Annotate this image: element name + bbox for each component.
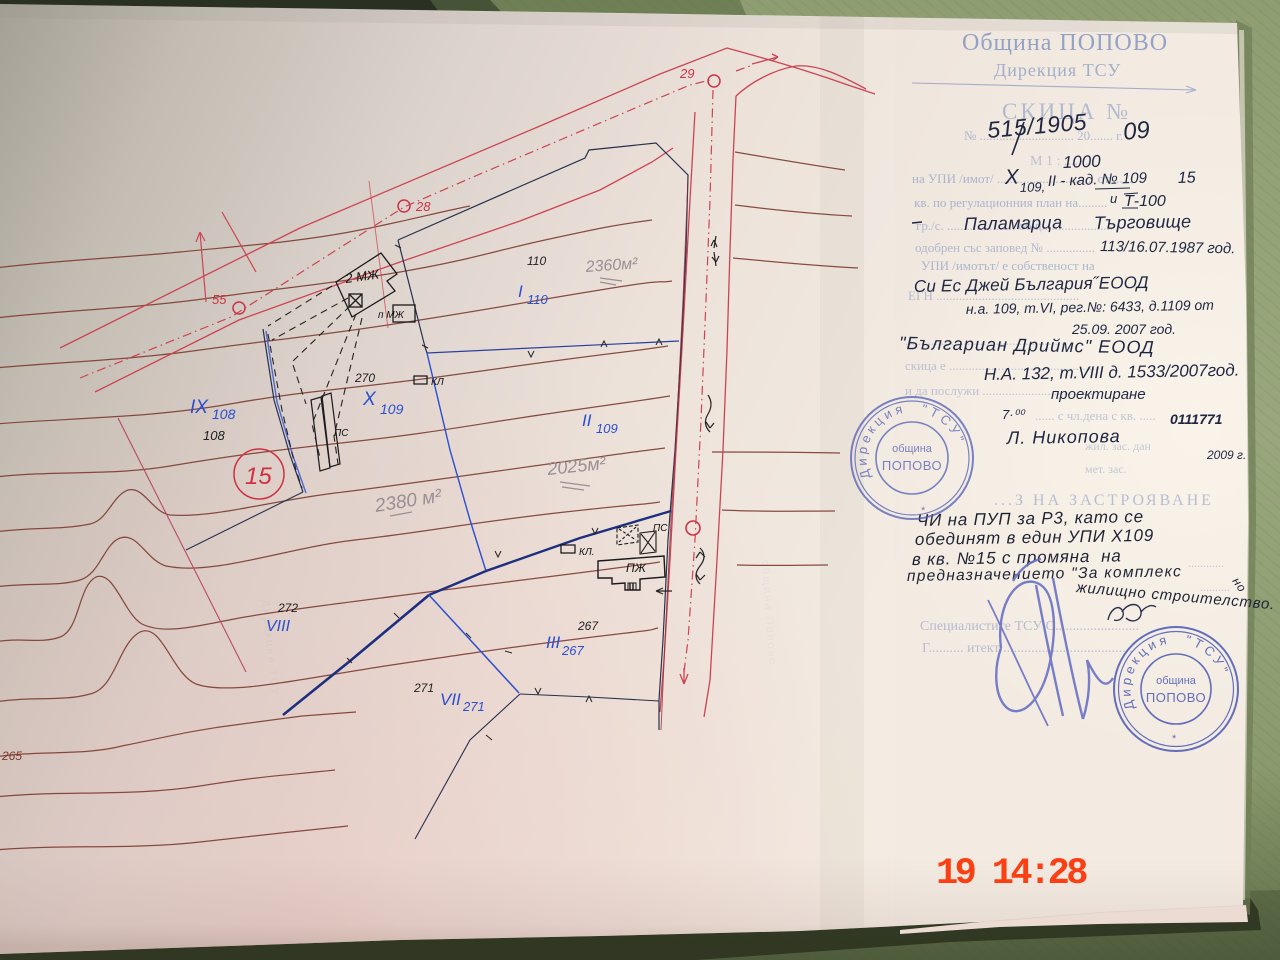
svg-text:Паламарца: Паламарца — [964, 212, 1063, 234]
svg-text:271: 271 — [462, 699, 485, 714]
svg-text:I: I — [518, 282, 523, 301]
svg-text:1000: 1000 — [1062, 152, 1101, 172]
svg-text:КЛ: КЛ — [431, 377, 444, 388]
svg-text:IX: IX — [190, 397, 209, 418]
svg-text:одобрен със заповед № ........: одобрен със заповед № ............... — [915, 240, 1095, 255]
svg-text:проектиране: проектиране — [1051, 386, 1146, 403]
svg-text:267: 267 — [577, 619, 599, 633]
svg-text:19 14:28: 19 14:28 — [936, 853, 1087, 895]
svg-text:29: 29 — [679, 66, 694, 81]
svg-text:п МЖ: п МЖ — [378, 310, 405, 321]
svg-text:............: ............ — [1188, 556, 1224, 570]
svg-text:270: 270 — [354, 371, 375, 385]
svg-text:272: 272 — [277, 601, 298, 615]
svg-text:Специалистите ТСУ С...........: Специалистите ТСУ С.....................… — [920, 619, 1139, 634]
svg-text:Дирекция ТСУ: Дирекция ТСУ — [994, 60, 1121, 80]
svg-text:109: 109 — [596, 421, 618, 436]
svg-text:15: 15 — [1178, 169, 1196, 187]
svg-text:55: 55 — [212, 292, 227, 307]
svg-text:Г.......... итект ............: Г.......... итект ......................… — [922, 641, 1133, 656]
svg-text:265: 265 — [1, 749, 22, 763]
svg-text:271: 271 — [413, 681, 434, 695]
svg-text:Х: Х — [1003, 165, 1020, 189]
svg-text:Търговище: Търговище — [1094, 211, 1192, 233]
svg-text:III: III — [546, 633, 560, 652]
svg-text:108: 108 — [212, 406, 236, 422]
svg-text:110: 110 — [527, 292, 548, 307]
svg-text:0111771: 0111771 — [1170, 411, 1223, 427]
svg-text:мет. зас.: мет. зас. — [1085, 462, 1127, 476]
svg-text:и: и — [1110, 191, 1117, 206]
svg-text:ПЖ: ПЖ — [626, 561, 647, 575]
svg-text:109: 109 — [380, 401, 404, 417]
svg-text:15: 15 — [245, 463, 272, 490]
svg-text:VII: VII — [440, 690, 461, 709]
svg-text:...... с чл.дена с кв. .....: ...... с чл.дена с кв. ..... — [1035, 408, 1156, 423]
svg-text:X: X — [362, 389, 377, 410]
svg-text:кв. по регулационния план на..: кв. по регулационния план на......... — [914, 195, 1107, 210]
svg-text:II: II — [582, 411, 592, 430]
svg-text:КЛ.: КЛ. — [579, 547, 595, 558]
svg-text:II - кад. № 109: II - кад. № 109 — [1048, 170, 1148, 190]
svg-text:7·⁰⁰: 7·⁰⁰ — [1002, 407, 1026, 422]
svg-text:ПОПОВО: ПОПОВО — [1146, 690, 1206, 705]
svg-text:09: 09 — [1122, 116, 1151, 146]
svg-text:ПОПОВО: ПОПОВО — [882, 458, 942, 473]
svg-text:113/16.07.1987 год.: 113/16.07.1987 год. — [1100, 238, 1236, 257]
svg-text:община: община — [1156, 675, 1197, 687]
svg-text:25.09. 2007 год.: 25.09. 2007 год. — [1071, 321, 1176, 337]
svg-text:108: 108 — [203, 428, 225, 443]
svg-text:28: 28 — [415, 199, 431, 214]
svg-text:ПС: ПС — [334, 428, 349, 439]
svg-text:*: * — [921, 505, 926, 517]
svg-text:ПС: ПС — [653, 523, 668, 534]
svg-text:110: 110 — [527, 254, 546, 268]
svg-text:Л. Никопова: Л. Никопова — [1006, 426, 1121, 448]
svg-text:*: * — [1172, 733, 1177, 745]
svg-text:2009 г.: 2009 г. — [1206, 448, 1246, 462]
svg-text:...З НА ЗАСТРОЯВАНЕ: ...З НА ЗАСТРОЯВАНЕ — [994, 492, 1214, 509]
svg-text:267: 267 — [561, 643, 584, 658]
svg-text:община: община — [892, 443, 933, 455]
svg-text:УПИ /имотът/ е собственост на: УПИ /имотът/ е собственост на — [921, 258, 1095, 273]
svg-text:109,: 109, — [1020, 179, 1046, 195]
svg-text:Община ПОПОВО: Община ПОПОВО — [962, 30, 1168, 56]
